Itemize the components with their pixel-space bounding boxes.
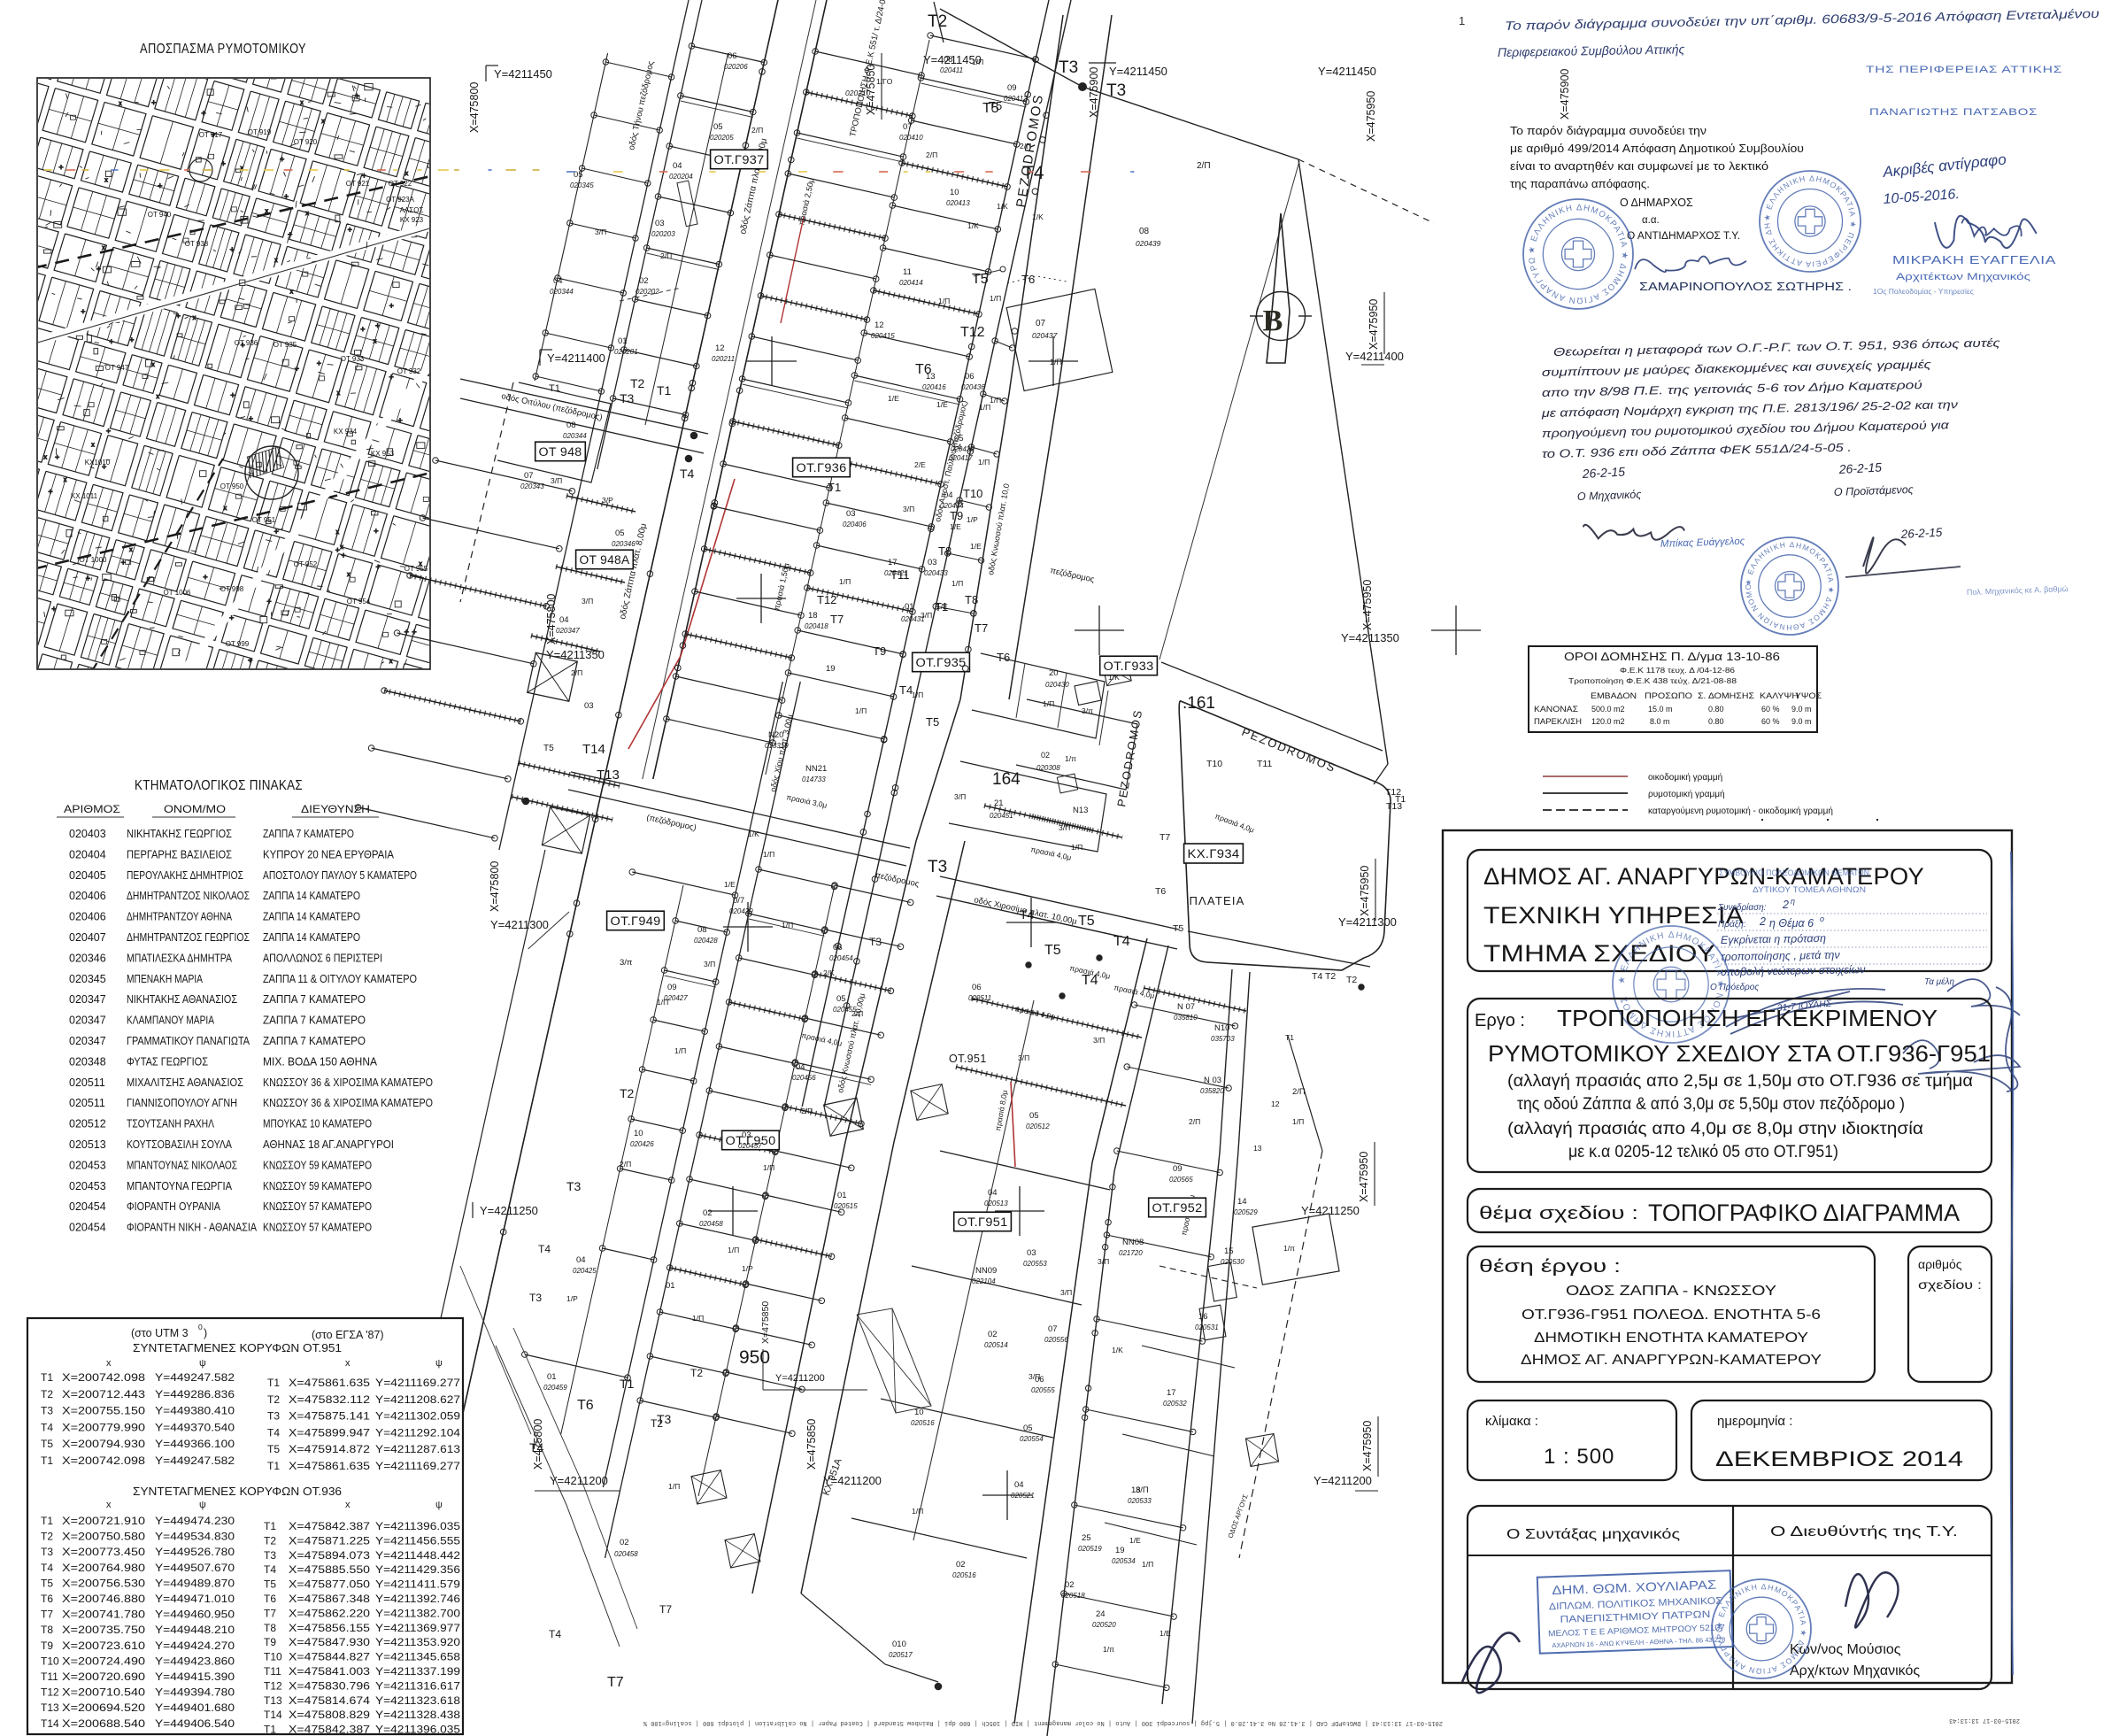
svg-text:ΖΑΠΠΑ 7 ΚΑΜΑΤΕΡΟ: ΖΑΠΠΑ 7 ΚΑΜΑΤΕΡΟ <box>263 828 354 840</box>
svg-text:Y=4211448.442: Y=4211448.442 <box>375 1549 460 1562</box>
svg-text:X=200794.930: X=200794.930 <box>62 1438 145 1450</box>
svg-text:): ) <box>204 1327 207 1339</box>
svg-text:020308: 020308 <box>1036 764 1060 772</box>
svg-text:09: 09 <box>667 983 677 992</box>
svg-text:Τ7: Τ7 <box>975 621 988 635</box>
svg-text:Y=449370.540: Y=449370.540 <box>155 1421 235 1433</box>
svg-text:12: 12 <box>874 320 884 330</box>
svg-text:X=200710.540: X=200710.540 <box>62 1686 145 1699</box>
svg-text:x: x <box>347 572 351 578</box>
svg-text:Τ3: Τ3 <box>620 391 635 405</box>
svg-text:X=475856.155: X=475856.155 <box>289 1622 370 1634</box>
svg-text:02: 02 <box>988 1330 998 1339</box>
svg-text:ΚΛΑΜΠΑΝΟΥ ΜΑΡΙΑ: ΚΛΑΜΠΑΝΟΥ ΜΑΡΙΑ <box>127 1015 215 1027</box>
svg-text:1/Π: 1/Π <box>972 58 983 66</box>
svg-text:Τ14: Τ14 <box>582 742 605 757</box>
svg-text:020429: 020429 <box>729 907 753 915</box>
svg-text:X=475861.635: X=475861.635 <box>289 1460 370 1472</box>
svg-text:Τ2: Τ2 <box>41 1388 53 1400</box>
svg-text:9.0 m: 9.0 m <box>1791 717 1812 726</box>
svg-text:020206: 020206 <box>724 63 748 71</box>
svg-text:Τ5: Τ5 <box>1044 943 1061 958</box>
svg-text:020344: 020344 <box>550 288 574 296</box>
svg-text:+: + <box>412 628 416 637</box>
svg-text:05: 05 <box>1023 1424 1033 1433</box>
svg-text:Τ9: Τ9 <box>264 1636 276 1648</box>
svg-text:020511: 020511 <box>69 1097 105 1109</box>
svg-text:ΖΑΠΠΑ 7 ΚΑΜΑΤΕΡΟ: ΖΑΠΠΑ 7 ΚΑΜΑΤΕΡΟ <box>263 993 366 1006</box>
svg-text:Ν 07: Ν 07 <box>1177 1002 1195 1012</box>
svg-text:Σ. ΔΟΜΗΣΗΣ: Σ. ΔΟΜΗΣΗΣ <box>1698 691 1755 700</box>
svg-text:X=475800: X=475800 <box>468 82 481 133</box>
svg-text:3/π: 3/π <box>1082 706 1093 715</box>
svg-text:ο: ο <box>1820 914 1824 923</box>
svg-text:θέση έργου :: θέση έργου : <box>1479 1257 1621 1277</box>
svg-text:ΜΠΕΝΑΚΗ ΜΑΡΙΑ: ΜΠΕΝΑΚΗ ΜΑΡΙΑ <box>127 973 204 985</box>
svg-text:Τ13: Τ13 <box>41 1701 59 1714</box>
svg-text:X=200779.990: X=200779.990 <box>62 1421 145 1433</box>
svg-text:013319: 013319 <box>765 742 789 750</box>
svg-text:πρασιά 4,0μ: πρασιά 4,0μ <box>1213 812 1255 835</box>
svg-text:αριθμός: αριθμός <box>1918 1257 1962 1271</box>
svg-text:2/Π: 2/Π <box>851 1009 863 1018</box>
svg-text:020204: 020204 <box>669 173 693 181</box>
svg-text:X=200724.490: X=200724.490 <box>62 1655 145 1667</box>
svg-text:X=475885.550: X=475885.550 <box>289 1563 370 1576</box>
svg-text:Ο ΔΗΜΑΡΧΟΣ: Ο ΔΗΜΑΡΧΟΣ <box>1620 197 1693 209</box>
svg-text:14: 14 <box>1237 1197 1247 1207</box>
svg-text:02: 02 <box>956 1560 966 1570</box>
svg-text:020453: 020453 <box>69 1180 106 1192</box>
svg-text:020413: 020413 <box>946 199 970 207</box>
svg-text:60 %: 60 % <box>1761 717 1780 726</box>
svg-text:Ακριβές αντίγραφο: Ακριβές αντίγραφο <box>1881 150 2007 181</box>
svg-text:ΟΤ.951: ΟΤ.951 <box>949 1053 987 1065</box>
svg-text:020514: 020514 <box>984 1341 1008 1349</box>
svg-text:είναι το αναρτηθέν και συμφωνε: είναι το αναρτηθέν και συμφωνεί με το λε… <box>1510 159 1768 173</box>
svg-text:ΟΤ 921: ΟΤ 921 <box>346 180 370 188</box>
svg-text:1/Π: 1/Π <box>1071 843 1082 852</box>
svg-text:ΟΤ 1006: ΟΤ 1006 <box>164 589 192 597</box>
svg-text:020412: 020412 <box>1004 95 1028 103</box>
svg-text:Τ4: Τ4 <box>549 1628 561 1640</box>
svg-text:020453: 020453 <box>69 1159 106 1171</box>
svg-text:+: + <box>335 546 340 555</box>
svg-text:3/Π: 3/Π <box>1136 1485 1149 1495</box>
svg-text:020205: 020205 <box>710 134 734 142</box>
svg-text:ΤΗΣ ΠΕΡΙΦΕΡΕΙΑΣ ΑΤΤΙΚΗΣ: ΤΗΣ ΠΕΡΙΦΕΡΕΙΑΣ ΑΤΤΙΚΗΣ <box>1866 65 2062 75</box>
svg-text:ΝΝ09: ΝΝ09 <box>975 1266 997 1276</box>
svg-text:Ο ΑΝΤΙΔΗΜΑΡΧΟΣ Τ.Υ.: Ο ΑΝΤΙΔΗΜΑΡΧΟΣ Τ.Υ. <box>1627 231 1740 242</box>
svg-text:Τ1: Τ1 <box>264 1724 276 1736</box>
svg-text:+: + <box>284 192 289 201</box>
svg-text:500.0 m2: 500.0 m2 <box>1591 705 1625 714</box>
svg-text:ΖΑΠΠΑ 14 ΚΑΜΑΤΕΡΟ: ΖΑΠΠΑ 14 ΚΑΜΑΤΕΡΟ <box>263 911 360 923</box>
svg-text:πρασιά 4,0μ: πρασιά 4,0μ <box>1014 1004 1057 1022</box>
svg-text:020512: 020512 <box>69 1118 106 1130</box>
svg-text:Τ12: Τ12 <box>1385 787 1401 798</box>
svg-text:ΖΑΠΠΑ 7 ΚΑΜΑΤΕΡΟ: ΖΑΠΠΑ 7 ΚΑΜΑΤΕΡΟ <box>263 1035 366 1047</box>
svg-text:3/Π: 3/Π <box>551 476 562 485</box>
svg-text:+: + <box>203 573 207 582</box>
svg-text:ΔΗΜΟΣ ΑΓ. ΑΝΑΡΓΥΡΩΝ-ΚΑΜΑΤΕΡΟΥ: ΔΗΜΟΣ ΑΓ. ΑΝΑΡΓΥΡΩΝ-ΚΑΜΑΤΕΡΟΥ <box>1521 1353 1822 1368</box>
svg-text:02: 02 <box>703 1208 713 1218</box>
svg-text:Y=4211369.977: Y=4211369.977 <box>375 1622 460 1634</box>
svg-text:07: 07 <box>1048 1324 1058 1334</box>
svg-text:Τ11: Τ11 <box>41 1670 58 1683</box>
svg-text:1/Ε: 1/Ε <box>1160 1629 1171 1638</box>
svg-text:03: 03 <box>742 1130 751 1140</box>
svg-text:το Ο.Τ. 936 επι οδό Ζάππα: το Ο.Τ. 936 επι οδό Ζάππα ΦΕΚ 551Δ/24-5-… <box>1542 441 1852 460</box>
svg-text:19: 19 <box>826 664 836 674</box>
svg-text:Τ6: Τ6 <box>1021 273 1035 286</box>
svg-text:ΚΝΩΣΣΟΥ 59 ΚΑΜΑΤΕΡΟ: ΚΝΩΣΣΟΥ 59 ΚΑΜΑΤΕΡΟ <box>263 1159 372 1171</box>
svg-text:Εργο :: Εργο : <box>1475 1011 1525 1030</box>
svg-text:Τ2: Τ2 <box>651 1417 663 1430</box>
svg-text:ΚΝΩΣΣΟΥ 36 & ΧΙΡΟΣΙΜΑ ΚΑΜΑΤΕΡΟ: ΚΝΩΣΣΟΥ 36 & ΧΙΡΟΣΙΜΑ ΚΑΜΑΤΕΡΟ <box>263 1097 433 1109</box>
svg-text:+: + <box>121 559 126 567</box>
svg-text:04: 04 <box>944 490 953 500</box>
svg-text:020512: 020512 <box>1026 1123 1050 1130</box>
svg-text:ΟΤ 955: ΟΤ 955 <box>404 565 428 573</box>
svg-text:020520: 020520 <box>1092 1621 1116 1629</box>
svg-text:ΑΠΟΣΠΑΣΜΑ ΡΥΜΟΤΟΜΙΚΟΥ: ΑΠΟΣΠΑΣΜΑ ΡΥΜΟΤΟΜΙΚΟΥ <box>140 42 306 57</box>
svg-text:+: + <box>109 337 113 346</box>
svg-text:ΟΤ.Γ952: ΟΤ.Γ952 <box>1152 1201 1203 1215</box>
svg-text:Τ5: Τ5 <box>264 1578 276 1591</box>
svg-text:11: 11 <box>903 267 912 277</box>
svg-text:03: 03 <box>928 558 937 567</box>
svg-text:ΤΡΟΠΟΠΟΙΗΣΗ Φ.Ε.Κ 551/ τ. Δ/: ΤΡΟΠΟΠΟΙΗΣΗ Φ.Ε.Κ 551/ τ. Δ/24-05-05 <box>848 0 892 138</box>
svg-text:Τ12: Τ12 <box>264 1679 282 1692</box>
svg-text:Ο Διευθύντής της Τ.Υ.: Ο Διευθύντής της Τ.Υ. <box>1770 1524 1958 1539</box>
svg-text:Τ2: Τ2 <box>41 1531 53 1543</box>
svg-text:1/Π: 1/Π <box>912 1507 923 1516</box>
svg-text:X=475877.050: X=475877.050 <box>289 1578 370 1591</box>
svg-text:x: x <box>224 505 227 512</box>
svg-text:ΦΥΤΑΣ ΓΕΩΡΓΙΟΣ: ΦΥΤΑΣ ΓΕΩΡΓΙΟΣ <box>127 1055 208 1068</box>
svg-text:Τ10: Τ10 <box>1206 759 1222 769</box>
svg-text:X=475832.112: X=475832.112 <box>289 1393 370 1406</box>
svg-text:05: 05 <box>954 434 964 444</box>
svg-text:020437: 020437 <box>1032 331 1058 340</box>
svg-text:08: 08 <box>697 925 707 935</box>
svg-text:Τ10: Τ10 <box>41 1655 59 1667</box>
svg-text:020454: 020454 <box>69 1222 106 1234</box>
svg-text:020430: 020430 <box>1045 681 1069 689</box>
svg-text:10: 10 <box>950 188 959 197</box>
svg-text:ΟΤ 954: ΟΤ 954 <box>347 598 371 606</box>
svg-text:X=475830.796: X=475830.796 <box>289 1679 370 1692</box>
svg-text:2/Π: 2/Π <box>571 668 582 677</box>
svg-text:X=475808.829: X=475808.829 <box>289 1709 370 1721</box>
svg-text:1/Ε: 1/Ε <box>950 522 961 531</box>
svg-text:Ο Συντάξας μηχανικός: Ο Συντάξας μηχανικός <box>1506 1527 1680 1542</box>
svg-text:ΑΡΙΘΜΟΣ: ΑΡΙΘΜΟΣ <box>64 803 120 815</box>
svg-text:ΟΤ 917: ΟΤ 917 <box>199 131 223 139</box>
svg-text:1/π: 1/π <box>1065 754 1076 763</box>
svg-text:Ν10: Ν10 <box>1214 1023 1229 1033</box>
svg-text:ψ: ψ <box>199 1358 206 1369</box>
svg-text:3/Π: 3/Π <box>1059 823 1070 832</box>
svg-text:020456: 020456 <box>792 1074 816 1082</box>
svg-text:Τ1: Τ1 <box>41 1515 53 1527</box>
svg-text:+: + <box>129 336 134 344</box>
svg-text:Συνεδρίαση:: Συνεδρίαση: <box>1717 902 1767 913</box>
svg-text:ΚΤΗΜΑΤΟΛΟΓΙΚΟΣ ΠΙΝΑΚΑΣ: ΚΤΗΜΑΤΟΛΟΓΙΚΟΣ ΠΙΝΑΚΑΣ <box>135 778 303 793</box>
svg-text:X=200741.780: X=200741.780 <box>62 1609 145 1621</box>
svg-text:021720: 021720 <box>1119 1249 1143 1257</box>
svg-text:+: + <box>86 575 90 583</box>
svg-text:Y=449423.860: Y=449423.860 <box>155 1655 235 1667</box>
svg-text:2/Π: 2/Π <box>660 251 672 260</box>
svg-text:120.0 m2: 120.0 m2 <box>1591 717 1625 726</box>
svg-text:πεζόδρομος: πεζόδρομος <box>1049 566 1096 585</box>
svg-text:+: + <box>274 528 279 536</box>
svg-text:Τ14: Τ14 <box>41 1717 59 1730</box>
svg-text:Τ6: Τ6 <box>41 1593 53 1605</box>
svg-text:Y=449474.230: Y=449474.230 <box>155 1515 235 1527</box>
svg-text:+: + <box>397 416 402 425</box>
svg-text:26-2-15: 26-2-15 <box>1899 526 1943 541</box>
svg-text:1Ος Πολεοδομίας - Υπηρεσίες: 1Ος Πολεοδομίας - Υπηρεσίες <box>1873 287 1974 296</box>
svg-text:Τ4 Τ2: Τ4 Τ2 <box>1312 971 1336 982</box>
svg-text:Y=449424.270: Y=449424.270 <box>155 1640 235 1652</box>
svg-text:06: 06 <box>972 983 982 992</box>
svg-text:ΟΤ.Γ937: ΟΤ.Γ937 <box>714 153 765 166</box>
svg-text:ΟΤ 948: ΟΤ 948 <box>539 445 582 459</box>
svg-text:απο την 8/98 Π.Ε. της γει: απο την 8/98 Π.Ε. της γειτονιάς 5-6 τον … <box>1542 378 1922 399</box>
svg-text:Πολ. Μηχανικός κε Α. βαθμώ: Πολ. Μηχανικός κε Α. βαθμώ <box>1967 584 2069 597</box>
svg-text:ημερομηνία :: ημερομηνία : <box>1717 1414 1792 1429</box>
svg-text:03: 03 <box>1027 1248 1036 1258</box>
svg-text:0/7: 0/7 <box>733 896 744 906</box>
svg-text:020532: 020532 <box>1163 1400 1187 1408</box>
svg-text:+: + <box>249 414 253 423</box>
svg-text:1/Κ: 1/Κ <box>967 221 979 230</box>
svg-text:Τ7: Τ7 <box>607 1675 624 1690</box>
svg-text:X=475875.141: X=475875.141 <box>289 1410 370 1423</box>
svg-text:+: + <box>176 312 181 320</box>
svg-text:3/Π: 3/Π <box>582 597 593 606</box>
svg-text:Τ2: Τ2 <box>1346 975 1357 985</box>
svg-text:3/Π: 3/Π <box>704 960 715 968</box>
svg-text:Τ4: Τ4 <box>680 467 695 481</box>
svg-text:x: x <box>104 177 108 183</box>
svg-text:Y=449460.950: Y=449460.950 <box>155 1609 235 1621</box>
svg-text:x: x <box>102 245 105 251</box>
svg-text:ΟΝΟΜ/ΜΟ: ΟΝΟΜ/ΜΟ <box>164 803 226 815</box>
svg-text:1/Κ: 1/Κ <box>997 202 1008 211</box>
svg-text:Τ8: Τ8 <box>41 1624 53 1636</box>
svg-text:2: 2 <box>1759 915 1766 928</box>
svg-text:2/Κ: 2/Κ <box>823 968 835 977</box>
svg-text:020458: 020458 <box>699 1220 723 1228</box>
svg-text:10: 10 <box>634 1129 643 1138</box>
svg-text:17: 17 <box>888 558 898 567</box>
svg-text:Τ2: Τ2 <box>620 1086 635 1100</box>
svg-text:προηγούμενη του ρυμοτομικού: προηγούμενη του ρυμοτομικού σχεδίου του … <box>1542 418 1950 440</box>
svg-text:πρασιά 4,0μ: πρασιά 4,0μ <box>1030 845 1073 862</box>
svg-text:1/Π: 1/Π <box>951 579 963 588</box>
svg-text:X=200756.530: X=200756.530 <box>62 1577 145 1589</box>
svg-text:Τ10: Τ10 <box>264 1651 282 1663</box>
svg-text:X=200712.443: X=200712.443 <box>62 1388 145 1400</box>
svg-text:συμπίπτουν με μαύρες διακεκ: συμπίπτουν με μαύρες διακεκομμένες και σ… <box>1542 358 1932 379</box>
svg-text:ΚΝΩΣΣΟΥ 59 ΚΑΜΑΤΕΡΟ: ΚΝΩΣΣΟΥ 59 ΚΑΜΑΤΕΡΟ <box>263 1180 372 1192</box>
svg-text:ΔΥΤΙΚΟΥ ΤΟΜΕΑ ΑΘΗΝΩΝ: ΔΥΤΙΚΟΥ ΤΟΜΕΑ ΑΘΗΝΩΝ <box>1753 885 1866 895</box>
svg-text:02: 02 <box>1065 1580 1075 1590</box>
svg-text:ΚΟΥΤΣΟΒΑΣΙΛΗ ΣΟΥΛΑ: ΚΟΥΤΣΟΒΑΣΙΛΗ ΣΟΥΛΑ <box>127 1138 233 1151</box>
svg-text:020407: 020407 <box>69 931 106 944</box>
svg-text:1/Π: 1/Π <box>1050 358 1062 366</box>
svg-text:06: 06 <box>833 943 843 953</box>
svg-text:1/Π: 1/Π <box>912 691 923 699</box>
svg-text:Y=4211323.618: Y=4211323.618 <box>375 1694 460 1707</box>
svg-text:(στο ΕΓΣΑ '87): (στο ΕΓΣΑ '87) <box>312 1329 384 1341</box>
svg-text:Y=4211337.199: Y=4211337.199 <box>375 1665 460 1678</box>
svg-text:+: + <box>96 265 101 274</box>
svg-text:Y=449448.210: Y=449448.210 <box>155 1624 235 1636</box>
svg-text:020347: 020347 <box>69 993 106 1006</box>
svg-text:Y=4211300: Y=4211300 <box>1338 915 1397 929</box>
svg-text:Ν 03: Ν 03 <box>1204 1076 1221 1085</box>
svg-text:020511: 020511 <box>968 994 991 1002</box>
svg-text:020210: 020210 <box>845 89 871 97</box>
svg-text:+: + <box>55 453 59 462</box>
svg-text:020515: 020515 <box>834 1202 858 1210</box>
svg-text:ΜΙΚΡΑΚΗ ΕΥΑΓΓΕΛΙΑ: ΜΙΚΡΑΚΗ ΕΥΑΓΓΕΛΙΑ <box>1892 254 2056 266</box>
svg-text:01: 01 <box>905 602 914 612</box>
svg-text:x: x <box>374 339 377 345</box>
svg-text:X=475862.220: X=475862.220 <box>289 1607 370 1619</box>
svg-text:Y=4211411.579: Y=4211411.579 <box>375 1578 460 1591</box>
svg-text:1/Ρ: 1/Ρ <box>566 1294 578 1303</box>
svg-text:οδός Κνωσσού πλατ. 10,0: οδός Κνωσσού πλατ. 10,0 <box>986 482 1011 575</box>
svg-text:Τ5: Τ5 <box>1173 923 1183 934</box>
svg-text:035703: 035703 <box>1211 1035 1235 1043</box>
svg-text:Y=449247.582: Y=449247.582 <box>155 1371 235 1384</box>
svg-text:+: + <box>266 598 271 606</box>
svg-text:X=200688.540: X=200688.540 <box>62 1717 145 1730</box>
svg-text:Y=449394.780: Y=449394.780 <box>155 1686 235 1699</box>
svg-text:ΚΧ.Γ934: ΚΧ.Γ934 <box>1188 846 1240 860</box>
svg-text:3/Π: 3/Π <box>595 228 606 236</box>
svg-text:05: 05 <box>836 994 846 1004</box>
svg-text:1/Π: 1/Π <box>782 921 793 930</box>
svg-text:Κων/νος Μούσιος: Κων/νος Μούσιος <box>1790 1642 1901 1657</box>
svg-text:τροποποίησης , μετά την: τροποποίησης , μετά την <box>1721 949 1841 963</box>
svg-text:04: 04 <box>796 1062 805 1072</box>
svg-text:X=475847.930: X=475847.930 <box>289 1636 370 1648</box>
svg-text:2/Π: 2/Π <box>1197 161 1211 171</box>
svg-text:020529: 020529 <box>1234 1208 1258 1216</box>
svg-text:.161: .161 <box>1183 694 1215 713</box>
svg-text:020347: 020347 <box>556 627 580 635</box>
svg-text:Y=4211300: Y=4211300 <box>490 918 549 931</box>
svg-text:ΟΤ.Γ936-Γ951 ΠΟΛΕΟΔ. ΕΝΟΤΗΤΑ: ΟΤ.Γ936-Γ951 ΠΟΛΕΟΔ. ΕΝΟΤΗΤΑ 5-6 <box>1522 1308 1821 1323</box>
svg-text:ΔΕΚΕΜΒΡΙΟΣ 2014: ΔΕΚΕΜΒΡΙΟΣ 2014 <box>1715 1447 1963 1471</box>
svg-text:ΖΑΠΠΑ 11 & ΟΙΤΥΛΟΥ ΚΑΜΑΤΕΡΟ: ΖΑΠΠΑ 11 & ΟΙΤΥΛΟΥ ΚΑΜΑΤΕΡΟ <box>263 973 417 985</box>
svg-text:πρασιά 1,50μ: πρασιά 1,50μ <box>772 562 791 611</box>
svg-text:ΚΑΛΥΨΗ: ΚΑΛΥΨΗ <box>1760 691 1799 700</box>
svg-text:X=475899.947: X=475899.947 <box>289 1426 370 1439</box>
svg-text:12: 12 <box>1271 1099 1280 1108</box>
svg-text:ΖΑΠΠΑ 14 ΚΑΜΑΤΕΡΟ: ΖΑΠΠΑ 14 ΚΑΜΑΤΕΡΟ <box>263 931 360 944</box>
svg-text:x: x <box>129 547 133 553</box>
svg-text:Τ3: Τ3 <box>1059 58 1078 77</box>
svg-text:+: + <box>317 359 321 368</box>
svg-text:Τ12: Τ12 <box>41 1686 59 1699</box>
svg-text:020414: 020414 <box>899 279 923 287</box>
svg-text:X=200735.750: X=200735.750 <box>62 1624 145 1636</box>
svg-text:πρασιά 8,0μ: πρασιά 8,0μ <box>993 1089 1009 1131</box>
svg-text:020406: 020406 <box>69 890 106 902</box>
svg-text:πεζόδρομος: πεζόδρομος <box>874 870 921 890</box>
svg-text:Τ1: Τ1 <box>620 1377 635 1391</box>
svg-text:1/Π: 1/Π <box>763 850 774 859</box>
svg-text:09: 09 <box>1173 1164 1183 1174</box>
svg-text:1/Ε: 1/Ε <box>1129 1536 1141 1545</box>
svg-text:Τ13: Τ13 <box>264 1694 282 1707</box>
svg-text:υποβολή νεώτερων στοιχείων: υποβολή νεώτερων στοιχείων <box>1721 963 1866 978</box>
svg-text:03: 03 <box>584 701 594 711</box>
svg-text:3/Π: 3/Π <box>1093 1036 1105 1045</box>
svg-text:+: + <box>288 230 292 239</box>
svg-text:X=200742.098: X=200742.098 <box>62 1454 145 1467</box>
svg-text:Το παρόν διάγραμμα συνοδεύει τ: Το παρόν διάγραμμα συνοδεύει την <box>1510 124 1707 137</box>
svg-text:Y=4211208.627: Y=4211208.627 <box>375 1393 460 1406</box>
svg-text:ΤΣΟΥΤΣΑΝΗ ΡΑΧΗΛ: ΤΣΟΥΤΣΑΝΗ ΡΑΧΗΛ <box>127 1118 215 1130</box>
svg-text:05: 05 <box>1029 1111 1039 1121</box>
svg-text:Τ7: Τ7 <box>264 1607 276 1619</box>
svg-text:Y=4211169.277: Y=4211169.277 <box>375 1460 460 1472</box>
svg-text:+: + <box>58 163 63 172</box>
svg-text:Τ3: Τ3 <box>1106 81 1126 100</box>
svg-text:ΦΙΟΡΑΝΤΗ ΟΥΡΑΝΙΑ: ΦΙΟΡΑΝΤΗ ΟΥΡΑΝΙΑ <box>127 1200 221 1213</box>
svg-text:x: x <box>193 315 196 321</box>
svg-text:Y=4211345.658: Y=4211345.658 <box>375 1651 460 1663</box>
svg-text:ΟΤ 999: ΟΤ 999 <box>226 640 250 648</box>
svg-text:25: 25 <box>1082 1533 1091 1543</box>
svg-text:Y=4211302.059: Y=4211302.059 <box>375 1410 460 1423</box>
svg-text:1/Π: 1/Π <box>674 1046 686 1055</box>
svg-text:+: + <box>362 171 366 180</box>
svg-text:ΚΧ1010: ΚΧ1010 <box>85 459 111 467</box>
svg-text:ΑΠΟΛΛΩΝΟΣ 6 ΠΕΡΙΣΤΕΡΙ: ΑΠΟΛΛΩΝΟΣ 6 ΠΕΡΙΣΤΕΡΙ <box>263 952 382 964</box>
svg-text:ΔΗΜΗΤΡΑΝΤΖΟΥ ΑΘΗΝΑ: ΔΗΜΗΤΡΑΝΤΖΟΥ ΑΘΗΝΑ <box>127 911 233 923</box>
svg-text:X=200694.520: X=200694.520 <box>62 1701 145 1714</box>
svg-text:Τ7: Τ7 <box>41 1609 53 1621</box>
svg-text:04: 04 <box>553 276 563 286</box>
svg-text:Πράξη:: Πράξη: <box>1718 919 1746 930</box>
svg-text:Ο Προϊστάμενος: Ο Προϊστάμενος <box>1834 483 1915 498</box>
svg-text:ΤΡΟΠΟΠΟΙΗΣΗ ΕΓΚΕΚΡΙΜΕΝΟΥ: ΤΡΟΠΟΠΟΙΗΣΗ ΕΓΚΕΚΡΙΜΕΝΟΥ <box>1557 1005 1938 1031</box>
svg-text:ΦΙΟΡΑΝΤΗ ΝΙΚΗ - ΑΘΑΝΑΣΙΑ: ΦΙΟΡΑΝΤΗ ΝΙΚΗ - ΑΘΑΝΑΣΙΑ <box>127 1222 258 1234</box>
svg-text:+: + <box>201 109 205 118</box>
svg-text:+: + <box>355 91 359 100</box>
svg-text:ΕΜΒΑΔΟΝ: ΕΜΒΑΔΟΝ <box>1591 691 1637 700</box>
svg-text:X=475867.348: X=475867.348 <box>289 1593 370 1605</box>
svg-text:020521: 020521 <box>1011 1492 1035 1500</box>
svg-text:x: x <box>44 454 48 460</box>
svg-text:η: η <box>1791 897 1795 906</box>
svg-text:06: 06 <box>965 372 975 382</box>
svg-text:020418: 020418 <box>805 622 828 630</box>
svg-text:2015-03-17 13:13:43 | DWGtoPDF: 2015-03-17 13:13:43 | DWGtoPDF CAD | 3.4… <box>643 1719 1443 1726</box>
svg-text:x: x <box>336 529 340 536</box>
svg-text:020203: 020203 <box>651 230 675 238</box>
